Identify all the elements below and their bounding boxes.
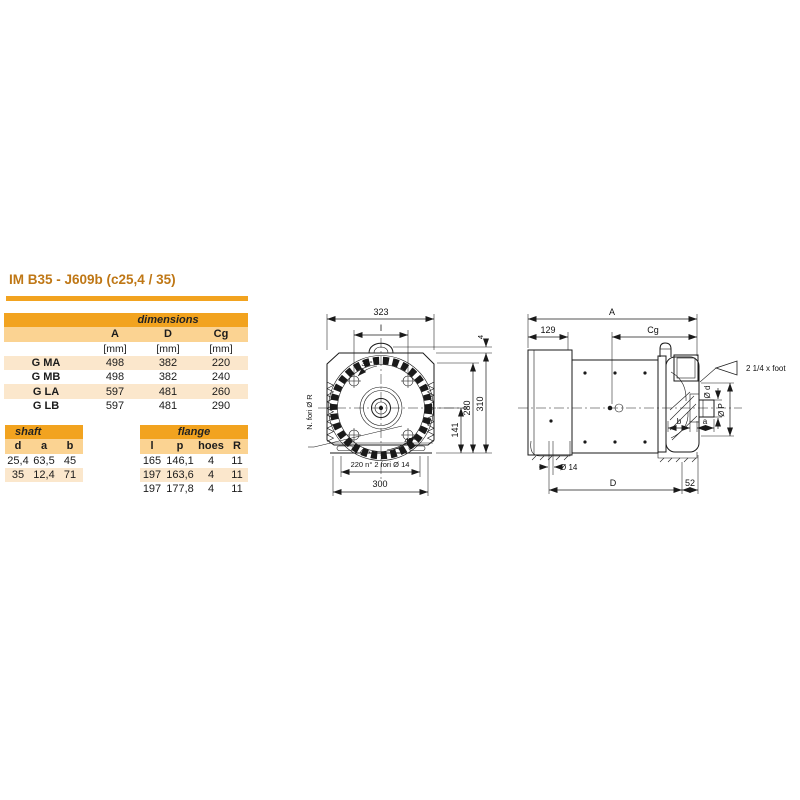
datasheet-page: IM B35 - J609b (c25,4 / 35) dimensions A… [0, 0, 800, 800]
rear-foot-hatch [532, 456, 568, 460]
front-foot-hatch [660, 458, 696, 462]
angle-30-label: 30° [361, 359, 372, 368]
dim-323-label: 323 [373, 307, 388, 317]
dim-l-label: l [380, 323, 382, 333]
rear-foot [531, 441, 570, 456]
dim-141-label: 141 [450, 422, 460, 437]
dim-b-label: b [677, 417, 682, 426]
cg-point [608, 406, 613, 411]
left-fins [327, 382, 334, 441]
dim-129-label: 129 [540, 325, 555, 335]
holes-note-label: N. fori Ø R [305, 394, 314, 430]
flange-plate [658, 356, 666, 452]
rear-cap [528, 350, 572, 455]
shaft [699, 400, 714, 417]
center-point [379, 406, 383, 410]
dim-Cg-label: Cg [647, 325, 659, 335]
front-foot [658, 452, 697, 458]
dim-A-label: A [609, 307, 615, 317]
side-view: A 129 Cg 2 1/4 x foot Ø d Ø P b a [518, 307, 786, 494]
dim-280-label: 280 [462, 400, 472, 415]
dim-14-label: Ø 14 [560, 463, 578, 472]
dim-D-label: D [610, 478, 617, 488]
dim-P-label: Ø P [717, 403, 726, 417]
dim-310-label: 310 [475, 396, 485, 411]
dim-4-label: 4 [476, 335, 485, 339]
angle-45-label: 45° [404, 436, 415, 445]
foot-note-leader [700, 368, 716, 382]
terminal-box-inner [677, 358, 695, 378]
foot-note-label: 2 1/4 x foot [746, 364, 786, 373]
dim-a-label: a [703, 417, 708, 426]
technical-drawing: 30° 45° N. fori Ø R 323 l 141 2 [0, 0, 800, 800]
left-foot-slot [337, 446, 353, 451]
fan-blade [671, 372, 686, 401]
side-lifting-lug-icon [660, 343, 671, 357]
section-hatch [670, 392, 697, 440]
front-view: 30° 45° N. fori Ø R 323 l 141 2 [305, 307, 492, 496]
dim-52-label: 52 [685, 478, 695, 488]
dim-d-label: Ø d [703, 386, 712, 399]
dim-300-label: 300 [372, 479, 387, 489]
dim-220-label: 220 n° 2 fori Ø 14 [351, 460, 410, 469]
foot-note-arrow-icon [716, 361, 737, 375]
